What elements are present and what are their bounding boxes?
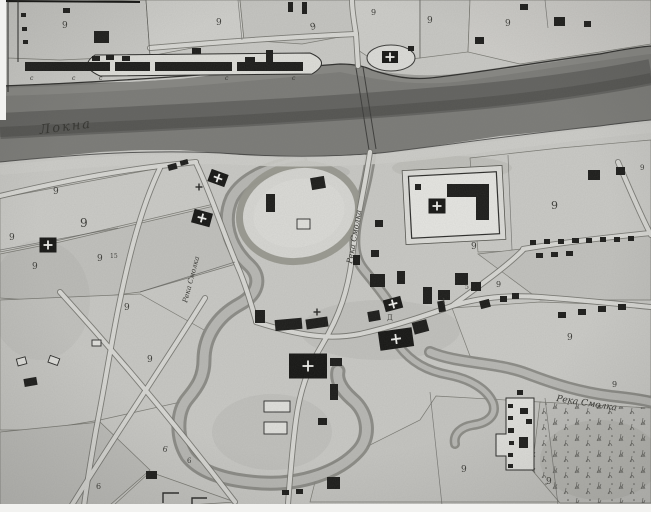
- scan-vignette: [0, 0, 651, 512]
- scanned-map-page: ЛокнаРека СмолкаРека СмолкаРека Смолка 9…: [0, 0, 651, 512]
- town-plan-map: ЛокнаРека СмолкаРека СмолкаРека Смолка 9…: [0, 0, 651, 512]
